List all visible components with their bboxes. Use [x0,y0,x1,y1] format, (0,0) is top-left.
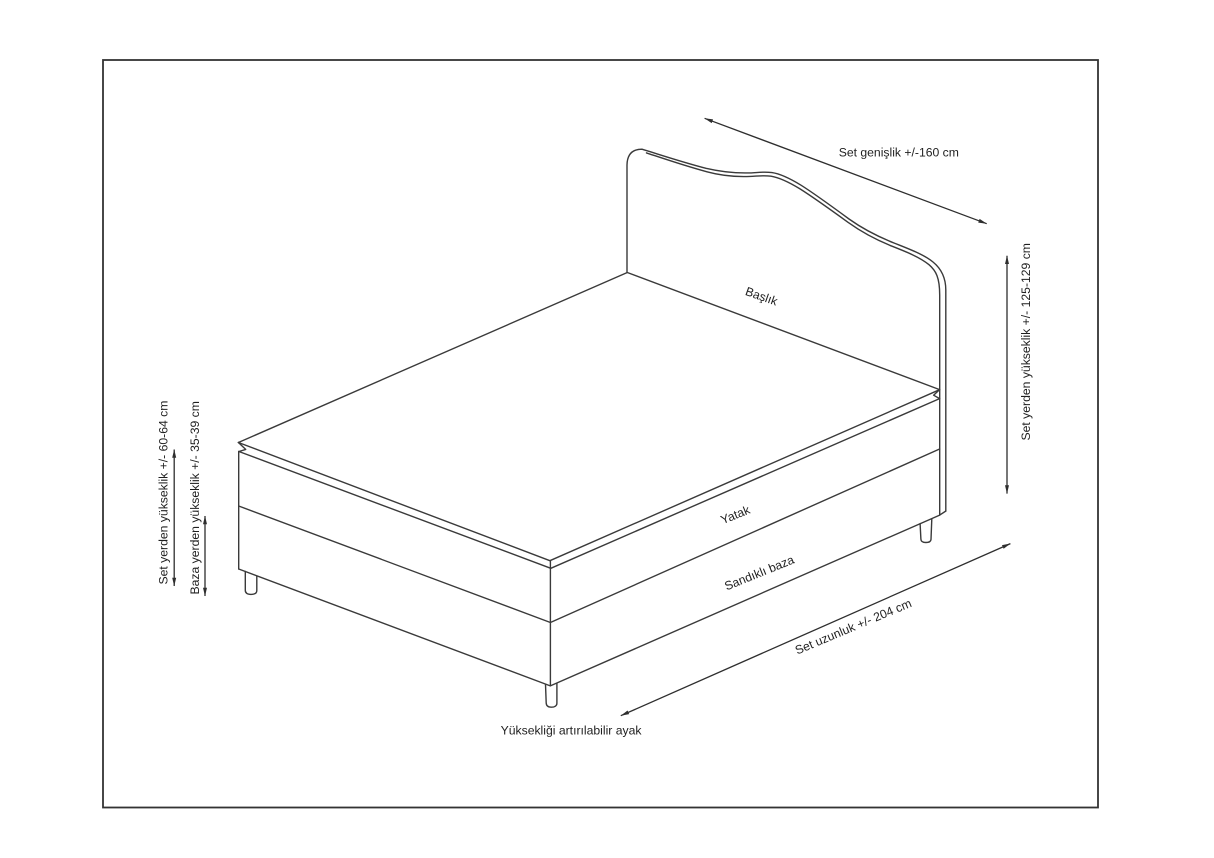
svg-text:Set yerden yükseklik +/- 60-64: Set yerden yükseklik +/- 60-64 cm [157,401,171,585]
svg-text:Sandıklı baza: Sandıklı baza [722,553,796,594]
svg-text:Set yerden yükseklik +/- 125-1: Set yerden yükseklik +/- 125-129 cm [1019,243,1033,440]
svg-text:Başlık: Başlık [743,284,780,309]
svg-text:Yatak: Yatak [719,502,753,527]
svg-text:Yüksekliği artırılabilir ayak: Yüksekliği artırılabilir ayak [501,723,643,737]
svg-text:Baza yerden yükseklik +/- 35-3: Baza yerden yükseklik +/- 35-39 cm [188,401,202,594]
svg-text:Set uzunluk +/- 204 cm: Set uzunluk +/- 204 cm [793,596,914,657]
svg-text:Set genişlik +/-160 cm: Set genişlik +/-160 cm [839,145,959,159]
